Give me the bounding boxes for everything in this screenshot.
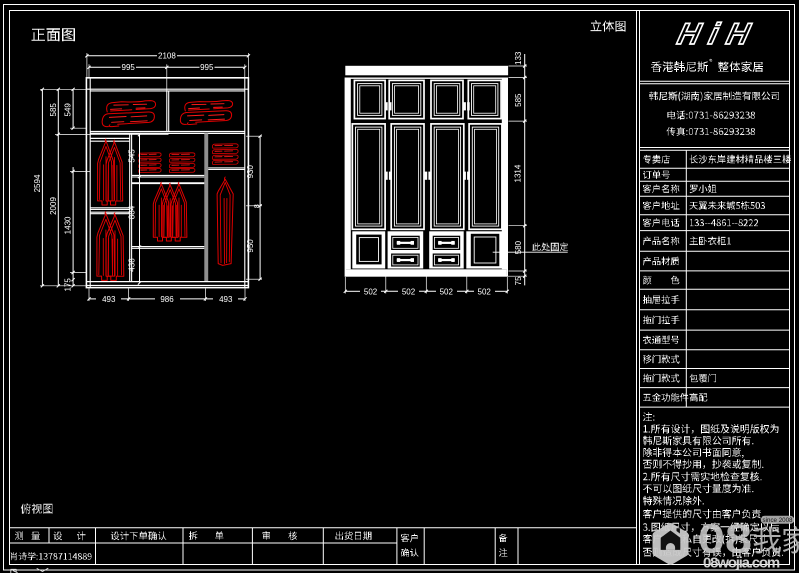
svg-text:175: 175: [64, 278, 73, 292]
svg-text:75: 75: [514, 276, 523, 285]
svg-text:545: 545: [128, 149, 137, 163]
svg-text:502: 502: [364, 287, 378, 296]
svg-text:8: 8: [254, 204, 261, 208]
svg-text:502: 502: [478, 287, 492, 296]
svg-text:133: 133: [514, 51, 523, 65]
svg-text:502: 502: [440, 287, 454, 296]
svg-text:1314: 1314: [514, 164, 523, 182]
svg-text:995: 995: [200, 63, 214, 72]
svg-text:438: 438: [128, 258, 137, 272]
svg-text:08wojia.com: 08wojia.com: [703, 555, 780, 572]
svg-text:2009: 2009: [49, 197, 58, 215]
svg-text:549: 549: [64, 103, 73, 117]
svg-text:493: 493: [102, 295, 116, 304]
svg-text:585: 585: [49, 103, 58, 117]
svg-text:585: 585: [514, 93, 523, 107]
svg-text:884: 884: [128, 205, 137, 219]
svg-text:995: 995: [122, 63, 136, 72]
svg-text:950: 950: [246, 239, 255, 253]
svg-text:2108: 2108: [158, 51, 176, 60]
svg-text:2594: 2594: [33, 174, 42, 192]
svg-text:1430: 1430: [64, 216, 73, 234]
svg-text:502: 502: [402, 287, 416, 296]
svg-text:493: 493: [219, 295, 233, 304]
svg-text:986: 986: [160, 295, 174, 304]
svg-text:since 2008: since 2008: [763, 517, 793, 524]
svg-text:930: 930: [246, 164, 255, 178]
svg-text:HiH: HiH: [674, 17, 763, 50]
